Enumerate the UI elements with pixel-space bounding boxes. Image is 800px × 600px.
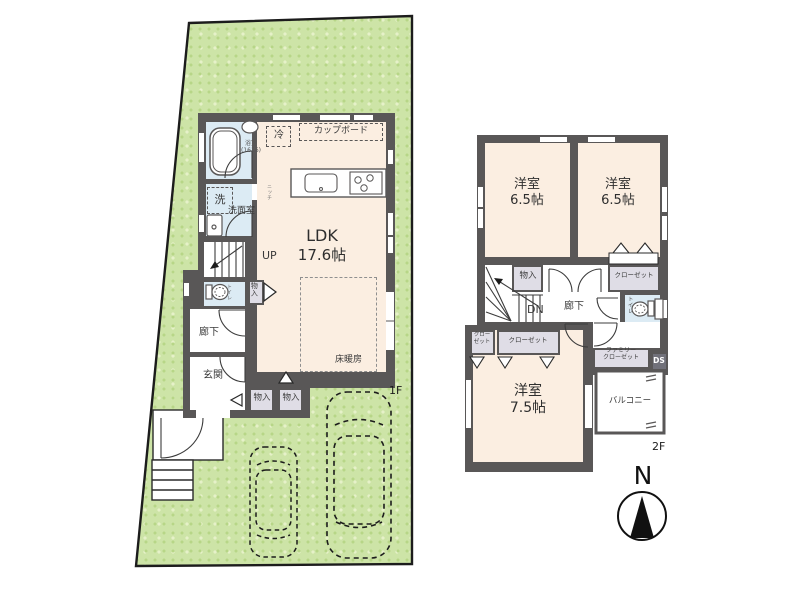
window — [662, 187, 667, 212]
window — [478, 187, 483, 207]
floor1-label: 1F — [389, 384, 402, 397]
floor2-label: 2F — [652, 440, 665, 453]
washer-label: 洗 — [215, 193, 226, 206]
window — [388, 150, 393, 164]
storage-side-label: 物入 — [250, 282, 258, 297]
stairs-down-label: DN — [527, 303, 544, 316]
closet-wide-label: クローゼット — [509, 337, 548, 345]
window — [184, 283, 189, 296]
window — [199, 133, 204, 162]
window — [388, 237, 393, 253]
floor-plan-canvas: 浴室(1616) 洗 洗面室 ニッチ 冷 カップボード LDK17.6帖 UP … — [0, 0, 800, 600]
window — [199, 215, 204, 232]
room-c-label: 洋室7.5帖 — [510, 383, 546, 417]
washroom-label: 洗面室 — [228, 206, 255, 217]
entrance-door-opening — [196, 410, 230, 418]
toilet-1f-label: トイレ — [226, 284, 232, 301]
fridge-label: 冷 — [274, 130, 284, 142]
balcony-door-window — [585, 385, 592, 428]
balcony-label: バルコニー — [609, 396, 651, 406]
window — [466, 380, 471, 428]
window — [662, 216, 667, 240]
closet-right-label: クローゼット — [615, 272, 654, 280]
window — [478, 209, 483, 228]
cupboard-label: カップボード — [314, 126, 368, 137]
sliding-door-window — [386, 292, 394, 350]
niche-label: ニッチ — [266, 184, 272, 201]
vestibule-2f — [593, 322, 660, 348]
storage-2f-label: 物入 — [519, 271, 536, 281]
north-label: N — [634, 461, 653, 491]
stairs-1f — [204, 242, 245, 277]
floor-heating-label: 床暖房 — [334, 355, 363, 366]
room-entrance — [190, 357, 245, 410]
stairs-hall-2f — [485, 265, 620, 322]
duct-space-label: DS — [653, 356, 665, 365]
room-toilet-1f — [204, 282, 245, 306]
room-a-label: 洋室6.5帖 — [510, 177, 544, 208]
window — [588, 137, 615, 142]
niche-opening — [252, 184, 257, 200]
closet-small-label: クローゼット — [474, 332, 491, 345]
stairs-up-label: UP — [262, 249, 277, 262]
window — [320, 115, 350, 120]
room-b-label: 洋室6.5帖 — [601, 177, 635, 208]
bath-label: 浴室(1616) — [241, 140, 261, 154]
storage-a-label: 物入 — [253, 393, 270, 403]
ldk-label: LDK17.6帖 — [298, 226, 346, 264]
family-closet-label: ファミリークローゼット — [603, 347, 639, 361]
window — [273, 115, 300, 120]
toilet-2f-label: トイレ — [626, 296, 633, 314]
north-arrow-icon — [618, 492, 666, 540]
hall-2f-label: 廊下 — [564, 301, 584, 313]
entrance-label: 玄関 — [203, 370, 223, 382]
window — [354, 115, 373, 120]
window — [540, 137, 567, 142]
window — [388, 213, 393, 235]
window — [662, 300, 667, 318]
storage-b-label: 物入 — [282, 393, 299, 403]
hall-1f-label: 廊下 — [199, 327, 219, 339]
site-lot-area — [0, 0, 800, 600]
